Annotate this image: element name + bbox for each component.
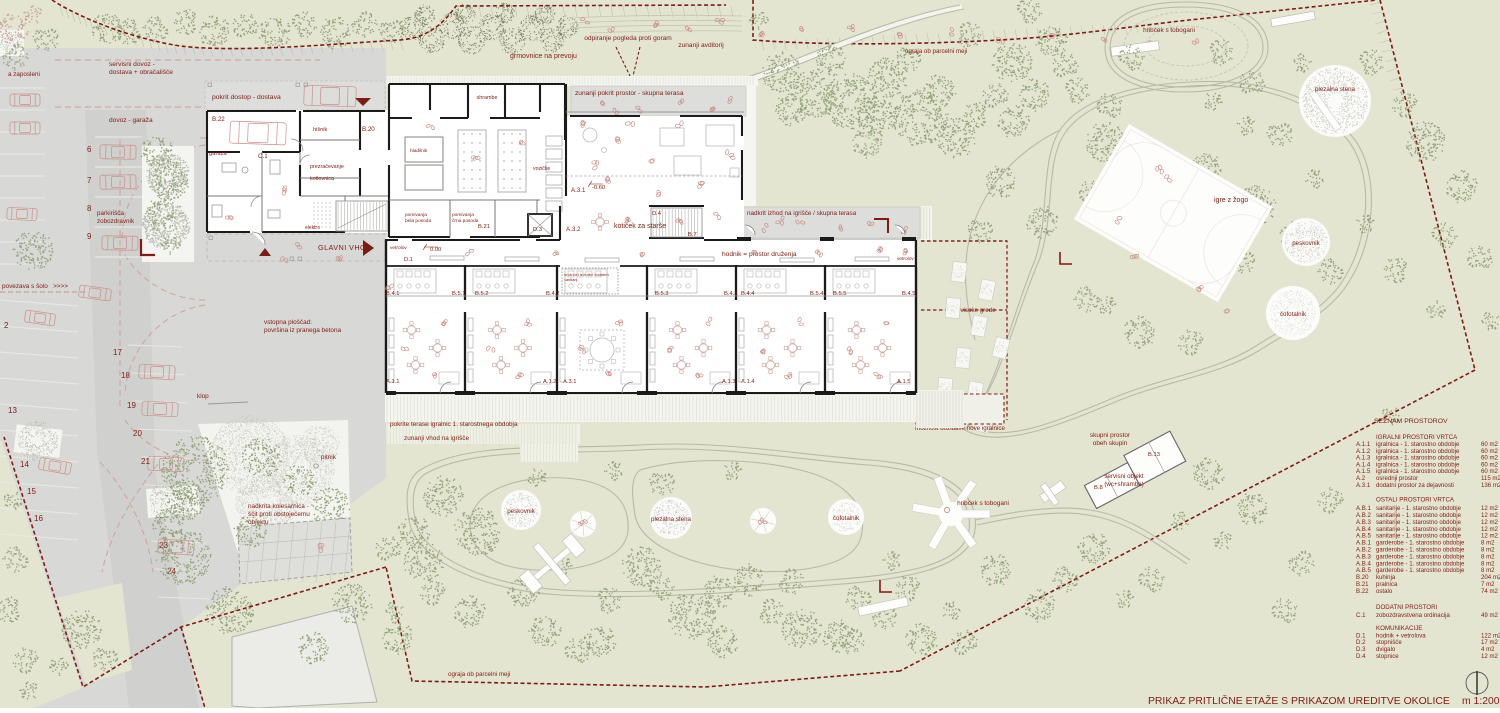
svg-text:peskovnik: peskovnik <box>1292 240 1320 247</box>
svg-text:9: 9 <box>87 232 92 241</box>
svg-text:B.22: B.22 <box>1356 588 1369 595</box>
svg-text:B.4.2: B.4.2 <box>546 291 560 297</box>
svg-text:12 m2: 12 m2 <box>1481 653 1499 660</box>
svg-text:a zaposleni: a zaposleni <box>8 71 40 78</box>
svg-text:74 m2: 74 m2 <box>1481 588 1499 595</box>
svg-text:zobozdravnik: zobozdravnik <box>97 218 135 225</box>
svg-text:bela posoda: bela posoda <box>405 218 431 224</box>
svg-text:vozičke: vozičke <box>533 166 550 172</box>
svg-text:dovoz - garaža: dovoz - garaža <box>109 117 153 124</box>
svg-text:klop: klop <box>197 393 209 400</box>
svg-text:-0.60: -0.60 <box>592 185 605 191</box>
svg-text:B.5.3: B.5.3 <box>655 291 669 297</box>
svg-text:sanitarij: sanitarij <box>564 277 578 282</box>
svg-text:21: 21 <box>141 457 150 466</box>
svg-text:igre z žogo: igre z žogo <box>1214 197 1248 204</box>
svg-text:pokrit dostop - dostava: pokrit dostop - dostava <box>212 94 281 101</box>
svg-text:B.5.1: B.5.1 <box>452 291 466 297</box>
svg-text:čofotalnik: čofotalnik <box>833 515 860 522</box>
svg-text:peskovnik: peskovnik <box>507 508 535 515</box>
svg-text:obeh skupin: obeh skupin <box>1093 440 1128 447</box>
svg-text:D.3: D.3 <box>533 227 542 233</box>
svg-text:grmovnice na prevoju: grmovnice na prevoju <box>510 53 577 60</box>
svg-text:stopnice: stopnice <box>1376 653 1399 660</box>
svg-text:A.3.1: A.3.1 <box>571 187 586 194</box>
svg-text:17: 17 <box>113 348 122 357</box>
svg-text:zunanji avditorij: zunanji avditorij <box>678 42 724 49</box>
svg-text:SEZNAM PROSTOROV: SEZNAM PROSTOROV <box>1374 418 1448 425</box>
svg-text:B.5.4: B.5.4 <box>810 291 824 297</box>
svg-text:pomivanja: pomivanja <box>452 212 474 218</box>
svg-text:visoke grede: visoke grede <box>960 307 996 314</box>
svg-text:plezalna stena: plezalna stena <box>1315 86 1355 93</box>
svg-text:nadkrit izhod na igrišče / sku: nadkrit izhod na igrišče / skupna terasa <box>747 210 857 217</box>
svg-text:črna posoda: črna posoda <box>452 218 479 224</box>
svg-text:8: 8 <box>87 204 92 213</box>
svg-text:136 m2: 136 m2 <box>1481 482 1500 489</box>
svg-text:nadkrita kolesarnica -: nadkrita kolesarnica - <box>248 503 309 510</box>
svg-text:PRIKAZ PRITLIČNE ETAŽE S PRIKA: PRIKAZ PRITLIČNE ETAŽE S PRIKAZOM UREDIT… <box>1148 694 1450 707</box>
svg-text:parkirišča: parkirišča <box>97 210 124 217</box>
svg-text:6: 6 <box>87 145 92 154</box>
svg-text:B.4.1: B.4.1 <box>386 291 400 297</box>
svg-text:C.1: C.1 <box>1356 612 1366 619</box>
svg-text:ščit proti obstoječemu: ščit proti obstoječemu <box>248 511 310 518</box>
svg-text:servisni dovoz -: servisni dovoz - <box>109 61 155 68</box>
svg-text:(wc+shramba): (wc+shramba) <box>1104 481 1143 488</box>
svg-text:kotlovnica: kotlovnica <box>310 176 334 182</box>
svg-text:14: 14 <box>20 460 29 469</box>
svg-text:B.13: B.13 <box>1148 452 1160 458</box>
svg-text:B.5.5: B.5.5 <box>833 291 847 297</box>
svg-text:ograja ob parcelni meji: ograja ob parcelni meji <box>905 48 967 55</box>
svg-text:DODATNI PROSTORI: DODATNI PROSTORI <box>1376 604 1438 611</box>
svg-text:B.7: B.7 <box>688 232 697 238</box>
svg-text:plezalna stena: plezalna stena <box>651 516 691 523</box>
svg-text:povezava s šolo >>>>: povezava s šolo >>>> <box>2 283 68 290</box>
svg-text:vetrolov: vetrolov <box>390 245 407 251</box>
svg-text:zunanji vhod na igrišče: zunanji vhod na igrišče <box>404 435 469 442</box>
svg-text:dostava + obračališče: dostava + obračališče <box>109 69 173 76</box>
svg-text:B.20: B.20 <box>362 126 375 133</box>
svg-text:18: 18 <box>121 371 130 380</box>
svg-text:pokrite terase igralnic 1. sta: pokrite terase igralnic 1. starostnega o… <box>390 421 518 428</box>
svg-text:B.5.2: B.5.2 <box>475 291 489 297</box>
svg-text:13: 13 <box>8 406 17 415</box>
svg-text:pitnik: pitnik <box>321 454 337 461</box>
svg-text:B.22: B.22 <box>212 116 225 123</box>
svg-text:IGRALNI PROSTORI VRTCA: IGRALNI PROSTORI VRTCA <box>1376 434 1458 441</box>
svg-text:površina iz pranega betona: površina iz pranega betona <box>264 327 342 334</box>
svg-text:zunanji pokrit prostor - skupn: zunanji pokrit prostor - skupna terasa <box>575 90 684 97</box>
svg-text:49 m2: 49 m2 <box>1481 612 1499 619</box>
svg-text:2: 2 <box>4 321 9 330</box>
svg-text:hodnik = prostor druženja: hodnik = prostor druženja <box>722 251 797 258</box>
svg-text:C.1: C.1 <box>258 153 268 160</box>
svg-text:čofotalnik: čofotalnik <box>1280 311 1307 318</box>
svg-text:dodatni prostor za dejavnosti: dodatni prostor za dejavnosti <box>1376 482 1454 489</box>
svg-text:servisni objekt: servisni objekt <box>1104 473 1143 480</box>
svg-text:7: 7 <box>87 176 92 185</box>
svg-text:odpiranje pogleda proti goram: odpiranje pogleda proti goram <box>584 35 672 42</box>
svg-text:prezračevanje: prezračevanje <box>310 164 344 170</box>
svg-text:pomivanja: pomivanja <box>405 212 427 218</box>
svg-text:A.3.2: A.3.2 <box>566 226 581 233</box>
svg-text:D.4: D.4 <box>652 211 662 217</box>
svg-text:hladilnik: hladilnik <box>410 148 428 154</box>
svg-text:B.8: B.8 <box>1094 485 1103 491</box>
svg-text:ograja ob parcelni meji: ograja ob parcelni meji <box>448 671 510 678</box>
svg-text:15: 15 <box>27 487 36 496</box>
svg-text:kotiček za starše: kotiček za starše <box>614 223 666 230</box>
svg-text:B.4.5: B.4.5 <box>902 291 916 297</box>
svg-text:OSTALI PROSTORI VRTCA: OSTALI PROSTORI VRTCA <box>1376 497 1455 504</box>
svg-text:B.21: B.21 <box>478 224 490 230</box>
svg-text:shrambe: shrambe <box>477 95 498 101</box>
svg-text:skupni prostor: skupni prostor <box>1090 432 1131 439</box>
svg-text:19: 19 <box>127 401 136 410</box>
svg-text:ostalo: ostalo <box>1376 588 1393 595</box>
svg-text:16: 16 <box>34 514 43 523</box>
svg-text:20: 20 <box>133 429 142 438</box>
svg-text:garaža: garaža <box>209 151 228 157</box>
svg-text:hišnik: hišnik <box>313 127 328 133</box>
svg-text:zobozdravstvena ordinacija: zobozdravstvena ordinacija <box>1376 612 1450 619</box>
svg-text:D.4: D.4 <box>1356 653 1366 660</box>
svg-text:23: 23 <box>159 541 168 550</box>
svg-text:m 1:200: m 1:200 <box>1462 696 1500 707</box>
svg-text:vetrolov: vetrolov <box>897 256 914 262</box>
svg-text:B.4.3: B.4.3 <box>724 291 738 297</box>
svg-text:0.00: 0.00 <box>430 247 441 253</box>
svg-text:B.4.4: B.4.4 <box>741 291 755 297</box>
svg-text:A.3.1: A.3.1 <box>1356 482 1371 489</box>
svg-text:D.1: D.1 <box>404 257 413 263</box>
svg-text:hribček s tobogani: hribček s tobogani <box>1143 27 1195 34</box>
svg-text:vstopna ploščad:: vstopna ploščad: <box>264 319 312 326</box>
svg-text:hribček s tobogani: hribček s tobogani <box>957 500 1009 507</box>
svg-text:elektro: elektro <box>305 225 320 231</box>
svg-text:KOMUNIKACIJE: KOMUNIKACIJE <box>1376 625 1422 632</box>
